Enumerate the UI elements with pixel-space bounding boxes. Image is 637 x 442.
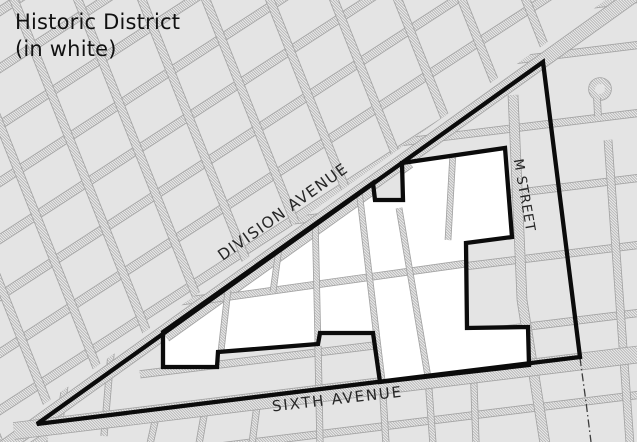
map-title-line1: Historic District bbox=[15, 9, 180, 36]
historic-district-map: DIVISION AVENUEM STREETSIXTH AVENUE bbox=[0, 0, 637, 442]
cul-de-sac bbox=[592, 81, 608, 97]
cul-de-sac-stem bbox=[597, 98, 598, 116]
map-title-line2: (in white) bbox=[15, 36, 180, 63]
map-canvas: DIVISION AVENUEM STREETSIXTH AVENUE Hist… bbox=[0, 0, 637, 442]
map-title: Historic District (in white) bbox=[15, 9, 180, 63]
district-street bbox=[315, 212, 318, 346]
